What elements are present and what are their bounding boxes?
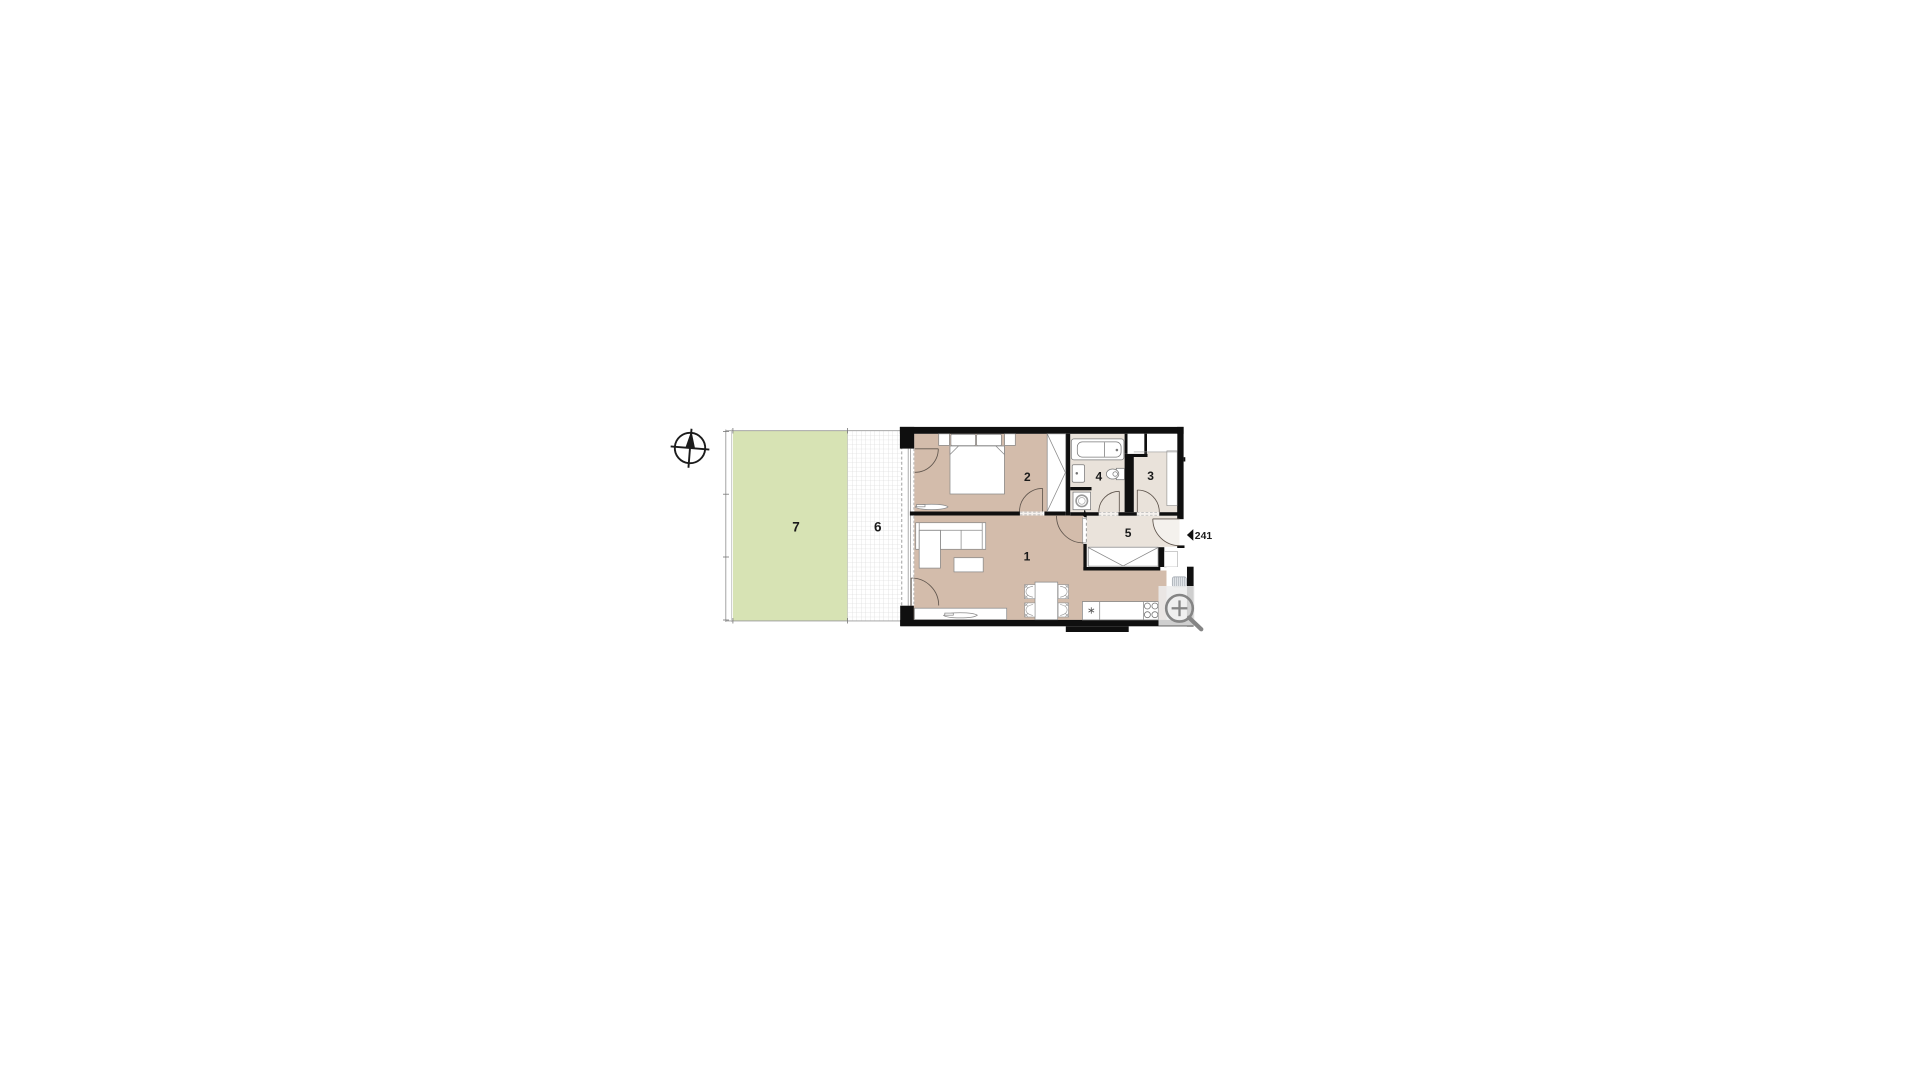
svg-text:2: 2 <box>1024 470 1031 484</box>
svg-text:3: 3 <box>1147 469 1154 483</box>
svg-text:241: 241 <box>1195 531 1213 542</box>
svg-text:7: 7 <box>792 519 800 534</box>
svg-text:5: 5 <box>1125 526 1132 540</box>
svg-text:1: 1 <box>1024 549 1031 563</box>
svg-text:4: 4 <box>1096 469 1103 483</box>
svg-text:6: 6 <box>874 519 882 534</box>
